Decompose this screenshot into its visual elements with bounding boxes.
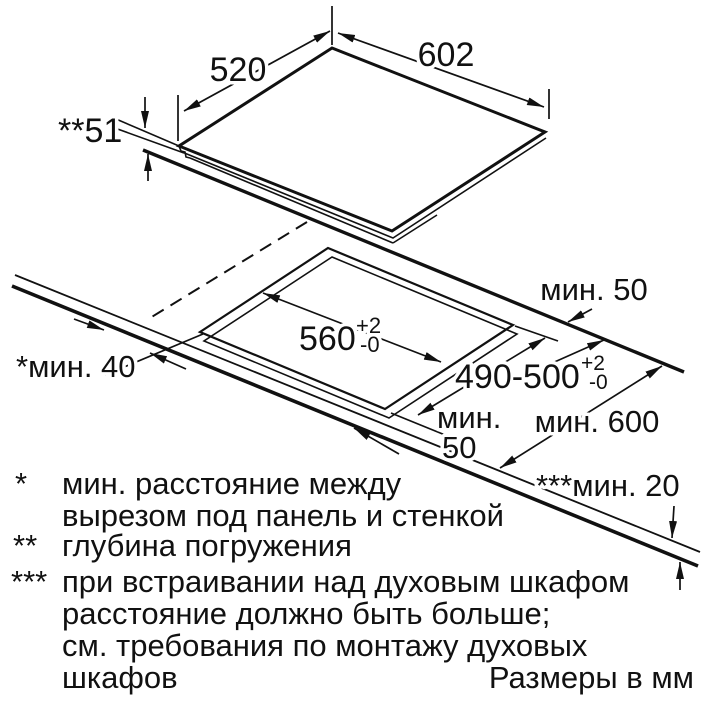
footnote-3-line-3: см. требования по монтажу духовых [62,628,588,663]
cooktop-base-right-edge [393,215,437,243]
label-panel-depth: 520 [210,51,267,89]
label-cutout-depth: 490-500 [455,358,580,396]
label-recess-depth: **51 [58,112,122,150]
label-worktop-depth: мин. 600 [535,404,660,439]
label-cutout-width-tol-minus: -0 [360,332,380,357]
projection-dashed-line [150,222,307,318]
units-note: Размеры в мм [489,660,694,695]
footnote-3-line-1: при встраивании над духовым шкафом [62,564,629,599]
arrow-bottom-clearance-down [672,506,674,538]
dimension-labels: 520 602 **51 мин. 50 560 +2 -0 490-500 +… [16,36,680,503]
footnote-3-line-2: расстояние должно быть больше; [62,596,550,631]
label-front-clearance-line2: 50 [442,430,476,465]
cooktop-panel [112,48,546,243]
label-cutout-depth-tol-minus: -0 [589,371,608,394]
worktop-back-edge [143,150,684,372]
label-side-clearance: *мин. 40 [16,349,136,384]
label-cutout-width: 560 [299,320,356,358]
label-panel-width: 602 [418,36,475,74]
footnote-marker-1: * [15,466,27,501]
footnote-marker-3: *** [11,564,47,599]
footnote-2-line-1: глубина погружения [62,528,352,563]
arrow-back-clearance [568,309,592,322]
footnote-marker-2: ** [13,528,37,563]
recess-reference-line-lower [112,127,184,153]
cooktop-base-front-edge [190,158,393,243]
cutout-back-right-extension [515,326,558,341]
label-back-clearance: мин. 50 [540,272,647,307]
label-bottom-clearance: ***мин. 20 [536,468,680,503]
hob-installation-drawing: 520 602 **51 мин. 50 560 +2 -0 490-500 +… [0,0,701,701]
installation-diagram-page: 520 602 **51 мин. 50 560 +2 -0 490-500 +… [0,0,701,701]
footnote-3-line-4: шкафов [62,660,178,695]
footnote-1-line-1: мин. расстояние между [62,466,402,501]
